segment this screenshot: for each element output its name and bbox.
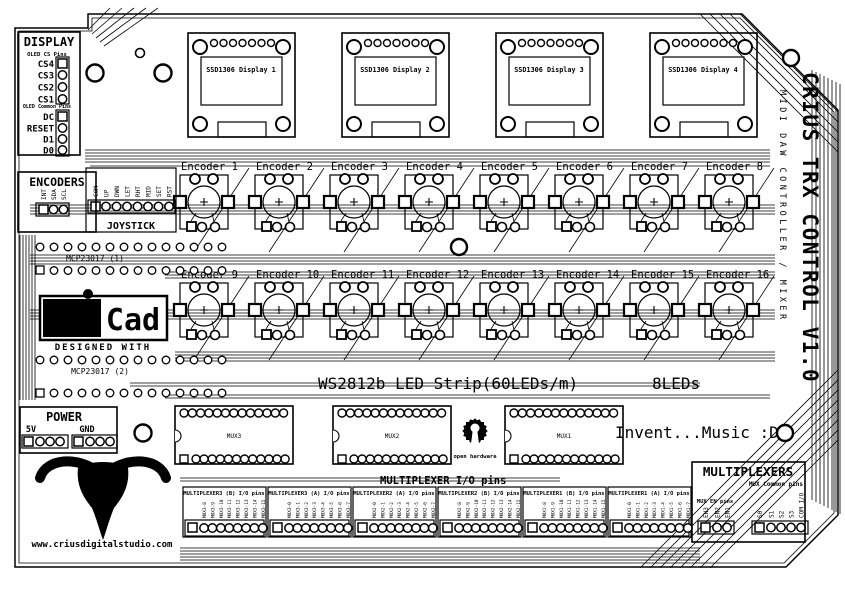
pin-pad: [587, 455, 595, 463]
pin-pad: [258, 40, 265, 47]
pin-pad: [573, 524, 581, 532]
pin-pad: [211, 223, 220, 232]
pin-pad: [738, 40, 752, 54]
encoder-label: Encoder 13: [481, 269, 544, 281]
mux-io-pin-label: MUX1-0: [627, 502, 633, 518]
mux-io-pin-label: MUX1-14: [592, 499, 598, 518]
pin-pad: [176, 267, 184, 275]
pin-pad: [230, 409, 238, 417]
mux-io-pin-label: MUX2-3: [397, 502, 403, 518]
pin-pad: [590, 524, 598, 532]
pin-pad: [58, 83, 66, 91]
mounting-hole: [155, 65, 172, 82]
pin-pad: [120, 267, 128, 275]
pin-pad: [433, 282, 443, 292]
pin-pad: [241, 455, 249, 463]
pin-pad: [190, 243, 198, 251]
pin-pad: [198, 223, 207, 232]
trace: [269, 276, 324, 360]
pin-pad-square: [528, 523, 537, 532]
pin-pad: [133, 202, 141, 210]
display-module: SSD1306 Display 2: [342, 33, 449, 137]
pin-pad-square: [474, 304, 486, 316]
pin-pad-square: [701, 523, 710, 532]
pin-pad-square: [522, 304, 534, 316]
pin-pad-square: [522, 196, 534, 208]
pin-pad-square: [297, 304, 309, 316]
pin-pad-square: [273, 523, 282, 532]
mux-io-pin-label: MUX3-1: [295, 502, 301, 518]
kicad-logo: Ki Cad DESIGNED WITH: [40, 289, 167, 353]
pin-pad: [573, 223, 582, 232]
pin-pad: [642, 524, 650, 532]
display-label: SSD1306 Display 1: [206, 66, 276, 74]
pin-pad: [285, 524, 293, 532]
board-subtitle-vertical: MIDI DAW CONTROLLER / MIXER: [777, 90, 787, 323]
pin-pad: [123, 202, 131, 210]
pin-pad: [797, 523, 805, 531]
pin-pad: [498, 331, 507, 340]
pin-pad: [733, 282, 743, 292]
pin-pad: [436, 331, 445, 340]
encoder-footprint: Encoder 6: [549, 161, 624, 252]
pin-pad: [511, 223, 520, 232]
pin-pad: [310, 524, 318, 532]
pin-pad: [583, 174, 593, 184]
encoders-block: ENCODERS INT SDA SCL: [18, 172, 96, 232]
pin-pad: [192, 455, 200, 463]
trace: [194, 276, 249, 360]
pin-pad: [64, 389, 72, 397]
mux-io-pin-label: MUX3-8: [202, 502, 208, 518]
pin-pad: [302, 524, 310, 532]
pin-pad: [599, 524, 607, 532]
pin-pad-square: [412, 330, 421, 339]
pin-pad: [50, 389, 58, 397]
pin-pad-square: [324, 304, 336, 316]
pin-pad: [584, 40, 598, 54]
pin-pad-square: [447, 304, 459, 316]
pin-pad: [658, 524, 666, 532]
mux-io-pin-label: MUX1-4: [661, 502, 667, 518]
pin-pad-square: [174, 304, 186, 316]
encoder-label: Encoder 3: [331, 161, 388, 173]
mux-io-group: MULTIPLEXER3 (A) I/O pinsMUX3-0MUX3-1MUX…: [268, 487, 352, 537]
pin-pad: [514, 524, 522, 532]
encoder-label: Encoder 2: [256, 161, 313, 173]
mux-io-group-title: MULTIPLEXER2 (B) I/O pins: [438, 491, 519, 497]
pin-pad: [661, 223, 670, 232]
trace: [644, 276, 699, 360]
pin-pad: [36, 243, 44, 251]
led-count-label: 8LEDs: [652, 374, 700, 393]
kicad-logo-ki: Ki: [54, 303, 90, 338]
mux-io-pin-label: MUX1-13: [584, 499, 590, 518]
pin-pad: [265, 282, 275, 292]
mux-io-pin-label: MUX1-9: [550, 502, 556, 518]
mux-io-pin-label: MUX3-10: [219, 499, 225, 518]
mux-io-pin-label: MUX2-5: [414, 502, 420, 518]
pin-pad: [112, 202, 120, 210]
pin-pad: [208, 282, 218, 292]
pin-pad-square: [187, 330, 196, 339]
trace-bundle-horizontal: [30, 150, 775, 560]
pin-pad: [58, 135, 66, 143]
pin-pad: [661, 331, 670, 340]
pin-pad-square: [399, 304, 411, 316]
pin-pad: [200, 455, 208, 463]
pin-pad: [540, 524, 548, 532]
pin-pad: [134, 243, 142, 251]
mux-io-pin-label: MUX3-12: [236, 499, 242, 518]
mounting-hole: [87, 65, 104, 82]
pin-pad: [370, 524, 378, 532]
pin-pad: [134, 356, 142, 364]
mux-io-pin-label: MUX2-12: [491, 499, 497, 518]
pin-pad-square: [262, 222, 271, 231]
pin-pad-square: [39, 205, 48, 214]
pin-pad: [595, 455, 603, 463]
open-hardware-logo: [462, 418, 487, 444]
pin-pad: [144, 202, 152, 210]
pin-pad: [283, 174, 293, 184]
pin-pad: [197, 409, 205, 417]
pin-pad: [658, 282, 668, 292]
via: [136, 49, 145, 58]
power-5v-label: 5V: [26, 425, 36, 435]
mux-io-pin-label: MUX2-10: [474, 499, 480, 518]
pin-pad: [429, 524, 437, 532]
pin-pad: [518, 409, 526, 417]
common-pin-label: D0: [43, 147, 54, 157]
pin-pad: [563, 455, 571, 463]
pin-pad: [276, 117, 290, 131]
pin-pad: [190, 389, 198, 397]
trace: [269, 168, 324, 252]
mux-io-pin-label: MUX2-11: [482, 499, 488, 518]
pin-pad-square: [549, 196, 561, 208]
power-title: POWER: [46, 410, 83, 424]
encoders-block-title: ENCODERS: [29, 175, 84, 189]
cs-pin-label: CS2: [38, 84, 54, 94]
pin-pad-square: [672, 304, 684, 316]
pin-pad-square: [747, 196, 759, 208]
pin-pad: [431, 455, 439, 463]
pin-pad: [78, 389, 86, 397]
mux-common-pins-label: MUX Common pins: [749, 481, 804, 488]
pin-pad: [208, 455, 216, 463]
mux-chip: MUX3: [175, 406, 293, 464]
joystick-pin-label: DWN: [114, 186, 121, 197]
mux-io-pin-label: MUX3-11: [227, 499, 233, 518]
mux-io-pin-label: MUX1-5: [669, 502, 675, 518]
pin-pad: [579, 455, 587, 463]
pin-pad: [340, 282, 350, 292]
pin-pad: [361, 331, 370, 340]
pin-pad: [488, 524, 496, 532]
pin-pad: [58, 95, 66, 103]
pin-pad: [36, 356, 44, 364]
pin-pad: [711, 40, 718, 47]
pin-pad: [586, 223, 595, 232]
pin-pad: [738, 117, 752, 131]
pin-pad-square: [637, 222, 646, 231]
pin-pad: [283, 282, 293, 292]
trace: [719, 168, 774, 252]
pin-pad: [571, 455, 579, 463]
pin-pad: [519, 40, 526, 47]
led-strip-label: WS2812b LED Strip(60LEDs/m): [318, 374, 578, 393]
pin-pad: [286, 223, 295, 232]
pin-pad: [162, 267, 170, 275]
pin-pad: [204, 389, 212, 397]
pin-pad: [701, 40, 708, 47]
pin-pad-square: [712, 330, 721, 339]
pin-pad-square: [337, 330, 346, 339]
pin-pad: [723, 223, 732, 232]
pin-pad-square: [637, 330, 646, 339]
pin-pad-square: [337, 222, 346, 231]
mux-io-pin-label: MUX2-7: [431, 502, 437, 518]
pin-pad: [280, 409, 288, 417]
pin-pad: [134, 267, 142, 275]
mux-chip: MUX2: [333, 406, 451, 464]
pin-pad: [501, 40, 515, 54]
pin-pad: [350, 455, 358, 463]
pin-pad-square: [372, 196, 384, 208]
encoder-label: Encoder 8: [706, 161, 763, 173]
pin-pad: [583, 282, 593, 292]
display-module: SSD1306 Display 3: [496, 33, 603, 137]
pin-pad: [318, 524, 326, 532]
mux-io-pin-label: MUX3-13: [244, 499, 250, 518]
pin-pad: [423, 223, 432, 232]
pin-pad: [238, 409, 246, 417]
pin-pad: [259, 524, 267, 532]
pin-pad: [363, 409, 371, 417]
encoder-label: Encoder 12: [406, 269, 469, 281]
mux-io-pin-label: MUX2-1: [380, 502, 386, 518]
mux-io-pin-label: MUX2-2: [389, 502, 395, 518]
pin-pad: [217, 524, 225, 532]
pin-pad: [403, 40, 410, 47]
pin-pad-square: [324, 196, 336, 208]
mux-io-pin-label: MUX3-15: [261, 499, 267, 518]
pin-pad: [220, 40, 227, 47]
pin-pad: [480, 524, 488, 532]
encoder-label: Encoder 10: [256, 269, 319, 281]
pin-pad: [420, 524, 428, 532]
pin-pad: [86, 437, 94, 445]
pin-pad: [265, 455, 273, 463]
pin-pad: [211, 40, 218, 47]
pin-pad: [204, 356, 212, 364]
pin-pad: [218, 356, 226, 364]
pin-pad: [582, 524, 590, 532]
pin-pad-square: [755, 523, 764, 532]
mux-io-group-title: MULTIPLEXER1 (A) I/O pins: [608, 491, 689, 497]
pin-pad: [56, 437, 64, 445]
mounting-hole: [783, 50, 799, 66]
pin-pad: [257, 455, 265, 463]
pin-pad: [225, 524, 233, 532]
mux-io-pin-label: MUX2-9: [465, 502, 471, 518]
pin-pad: [538, 455, 546, 463]
mounting-hole: [777, 425, 793, 441]
pin-pad: [96, 437, 104, 445]
pin-pad: [395, 524, 403, 532]
mux-io-pin-label: MUX1-7: [686, 502, 692, 518]
pin-pad: [64, 356, 72, 364]
pin-pad: [673, 40, 680, 47]
joystick-pin-label: SET: [156, 186, 163, 197]
pin-pad: [347, 40, 361, 54]
pin-pad: [538, 40, 545, 47]
board-title-vertical: CRIUS TRX CONTROL V1.0: [798, 72, 822, 383]
pin-pad: [407, 455, 415, 463]
pin-pad: [611, 455, 619, 463]
pin-pad-square: [180, 455, 188, 463]
joystick-pin-label: RHT: [135, 186, 142, 197]
mux-io-pin-label: MUX1-3: [652, 502, 658, 518]
pin-pad: [565, 282, 575, 292]
pin-pad: [490, 282, 500, 292]
display-screen-area: [201, 57, 282, 105]
pin-pad: [50, 356, 58, 364]
pin-pad: [106, 356, 114, 364]
pin-pad: [193, 40, 207, 54]
mux-io-pin-label: MUX2-0: [372, 502, 378, 518]
trace: [494, 276, 549, 360]
mux-io-group: MULTIPLEXER2 (A) I/O pinsMUX2-0MUX2-1MUX…: [353, 487, 437, 537]
pin-pad: [736, 223, 745, 232]
pin-pad: [250, 524, 258, 532]
s-pin-label: S2: [779, 510, 786, 518]
pin-pad: [233, 455, 241, 463]
mux-io-pin-label: MUX1-1: [635, 502, 641, 518]
com-io-pin-label: COM I/O: [799, 492, 806, 518]
encoder-label: Encoder 5: [481, 161, 538, 173]
mux-io-group: MULTIPLEXER3 (B) I/O pinsMUX3-8MUX3-9MUX…: [183, 487, 267, 537]
mux-io-pin-label: MUX3-7: [346, 502, 352, 518]
pin-pad: [655, 40, 669, 54]
pin-pad-square: [249, 304, 261, 316]
pin-pad-square: [222, 196, 234, 208]
pin-pad: [384, 40, 391, 47]
mcp23017-1-label: MCP23017 (1): [66, 254, 124, 263]
mux-io-pin-label: MUX2-4: [406, 502, 412, 518]
pin-pad: [455, 524, 463, 532]
pin-pad: [380, 409, 388, 417]
chip-notch: [505, 430, 511, 442]
mux-io-group-title: MULTIPLEXER2 (A) I/O pins: [353, 491, 434, 497]
mux-io-group: MULTIPLEXER1 (B) I/O pinsMUX1-8MUX1-9MUX…: [523, 487, 607, 537]
pin-pad: [268, 40, 275, 47]
pin-pad: [193, 117, 207, 131]
pin-pad: [273, 331, 282, 340]
mux-chip-label: MUX2: [385, 433, 400, 440]
pin-pad: [365, 40, 372, 47]
kicad-logo-cad: Cad: [106, 303, 160, 338]
mux-io-pin-label: MUX3-0: [287, 502, 293, 518]
mux-io-group-title: MULTIPLEXER3 (A) I/O pins: [268, 491, 349, 497]
pin-pad: [190, 356, 198, 364]
pin-pad: [281, 455, 289, 463]
pin-pad: [120, 356, 128, 364]
pin-pad: [472, 524, 480, 532]
mux-io-title: MULTIPLEXER I/O pins: [380, 475, 506, 487]
display-connector-tab: [218, 122, 266, 137]
pin-pad-square: [74, 437, 83, 446]
oled-common-section-label: OLED Common Pins: [23, 104, 71, 110]
encoder-label: Encoder 16: [706, 269, 769, 281]
pin-pad-square: [58, 112, 67, 121]
pin-pad: [358, 282, 368, 292]
pin-pad: [667, 524, 675, 532]
pin-pad: [148, 267, 156, 275]
pin-pad: [675, 524, 683, 532]
mux-io-pin-label: MUX1-6: [677, 502, 683, 518]
display-block: DISPLAY OLED CS Pins CS4 CS3 CS2 CS1 OLE…: [18, 32, 80, 157]
display-screen-area: [663, 57, 744, 105]
pin-pad: [204, 243, 212, 251]
pin-pad: [387, 524, 395, 532]
pin-pad: [249, 40, 256, 47]
pin-pad: [603, 455, 611, 463]
trace: [644, 168, 699, 252]
mcp23017-2-label: MCP23017 (2): [71, 367, 129, 376]
joystick-title: JOYSTICK: [107, 221, 155, 232]
pin-pad: [106, 267, 114, 275]
pin-pad: [78, 356, 86, 364]
pin-pad: [190, 282, 200, 292]
cs-pin-label: CS3: [38, 72, 54, 82]
mux-io-pin-label: MUX2-13: [499, 499, 505, 518]
pin-pad: [433, 174, 443, 184]
pin-pad: [586, 331, 595, 340]
pin-pad: [162, 389, 170, 397]
pin-pad: [565, 174, 575, 184]
pin-pad: [293, 524, 301, 532]
encoder-footprint: Encoder 4: [399, 161, 474, 252]
display-screen-area: [509, 57, 590, 105]
encoder-footprint: Encoder 10: [249, 269, 324, 360]
pin-pad: [188, 409, 196, 417]
pin-pad-square: [58, 59, 67, 68]
pin-pad: [335, 524, 343, 532]
mux-io-pin-label: MUX2-6: [422, 502, 428, 518]
pin-pad: [211, 331, 220, 340]
skull-text: CRIUS: [92, 486, 113, 494]
encoder-label: Encoder 7: [631, 161, 688, 173]
pin-pad: [548, 524, 556, 532]
pin-pad: [58, 71, 66, 79]
pin-pad: [399, 455, 407, 463]
joystick-pin-label: RST: [167, 186, 174, 197]
trace: [569, 168, 624, 252]
encoder-label: Encoder 1: [181, 161, 238, 173]
trace: [419, 168, 474, 252]
mounting-hole: [135, 425, 152, 442]
pin-pad: [49, 205, 57, 213]
pin-pad: [430, 117, 444, 131]
pin-pad: [36, 437, 44, 445]
pin-pad-square: [487, 330, 496, 339]
pin-pad: [58, 146, 66, 154]
pin-pad: [120, 243, 128, 251]
pin-pad: [415, 455, 423, 463]
pin-pad: [640, 174, 650, 184]
